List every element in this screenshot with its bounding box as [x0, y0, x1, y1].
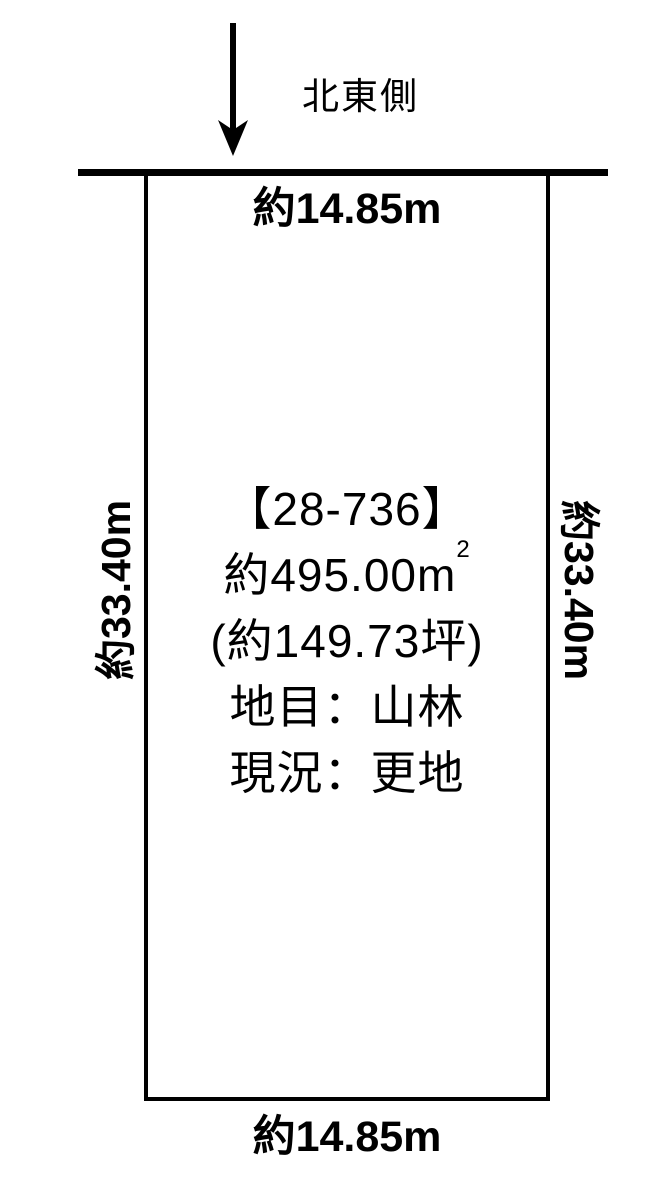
down-arrow-icon — [211, 20, 255, 158]
dimension-right-depth: 約33.40m — [553, 500, 613, 680]
land-plot-diagram: 北東側 約14.85m 約14.85m 約33.40m 約33.40m 【28-… — [0, 0, 648, 1185]
parcel-area-m2-superscript: 2 — [456, 538, 470, 562]
land-category: 地目：山林 — [144, 674, 550, 740]
current-condition: 現況：更地 — [144, 740, 550, 806]
parcel-area-m2-value: 約495.00m — [223, 549, 456, 601]
parcel-number: 【28-736】 — [144, 476, 550, 542]
direction-label: 北東側 — [302, 66, 419, 120]
parcel-area-m2: 約495.00m2 — [144, 542, 550, 608]
parcel-area-tsubo: (約149.73坪) — [144, 608, 550, 674]
dimension-top-width: 約14.85m — [144, 174, 550, 236]
parcel-info-block: 【28-736】 約495.00m2 (約149.73坪) 地目：山林 現況：更… — [144, 476, 550, 806]
dimension-bottom-width: 約14.85m — [144, 1102, 550, 1164]
dimension-left-depth: 約33.40m — [82, 500, 142, 680]
